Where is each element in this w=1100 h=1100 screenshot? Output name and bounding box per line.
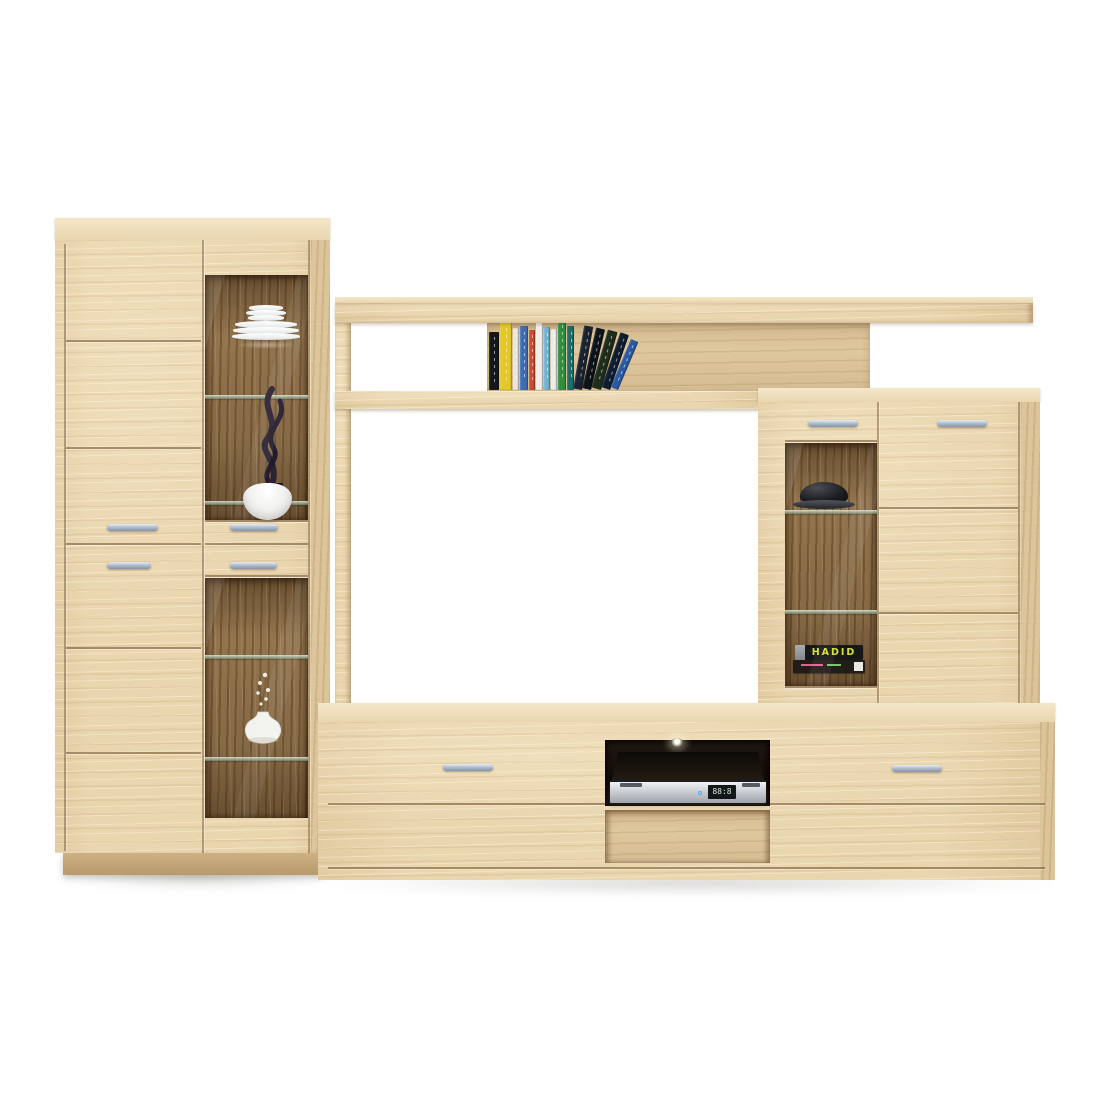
stacked-plates	[231, 305, 301, 395]
right-door-groove-2	[879, 612, 1018, 614]
book-spine	[544, 327, 550, 390]
tv-stand-groove-right	[770, 803, 1045, 805]
small-drawer-groove-2	[205, 543, 308, 545]
shelf-top-plank-front	[335, 303, 1033, 323]
shelf-top-plank	[335, 297, 1033, 323]
white-bowl	[243, 483, 292, 520]
player-power-led	[698, 791, 702, 795]
upper-door-groove-1	[66, 340, 201, 342]
upper-door-handle	[107, 524, 158, 531]
player-vent	[620, 783, 642, 787]
left-cabinet-frame-groove-left	[64, 244, 66, 851]
dvd-player-top	[612, 752, 764, 780]
tv-stand-top-face	[318, 703, 1055, 722]
small-drawer-groove-1	[205, 520, 308, 522]
player-display: 88:8	[708, 785, 736, 799]
left-display-cabinet	[55, 218, 330, 875]
hadid-book-title: HADID	[805, 645, 863, 660]
book-spine	[520, 326, 528, 390]
left-cabinet-top-face	[55, 218, 330, 240]
book-spine-2	[793, 660, 865, 673]
shelf-vertical-post	[335, 303, 351, 705]
book-spine	[558, 319, 566, 390]
lower-door-groove-2	[66, 752, 201, 754]
product-photo: HADID 88:8	[0, 0, 1100, 1100]
lower-display-window	[205, 578, 308, 818]
glass-shelf	[785, 610, 877, 614]
right-cabinet-door-handle	[937, 420, 987, 427]
left-cabinet-column-divider	[202, 240, 204, 853]
right-door-groove-1	[879, 507, 1018, 509]
left-cabinet-frame-groove-right	[308, 240, 310, 853]
glass-shelf	[205, 655, 308, 659]
right-cabinet-side-edge	[1020, 402, 1040, 715]
shelf-bottom-plank	[335, 391, 772, 409]
tv-drawer-handle-right	[892, 765, 942, 772]
book-spine	[489, 332, 499, 390]
book-spine	[551, 329, 557, 390]
tv-stand-groove-left	[328, 803, 605, 805]
dvd-player: 88:8	[610, 780, 766, 803]
lower-door-handle	[107, 562, 151, 569]
open-compartment	[605, 810, 770, 863]
tv-stand-bottom-groove	[328, 867, 1045, 869]
small-drawer-handle-1	[230, 524, 278, 531]
book-spine	[536, 320, 543, 390]
small-drawer-handle-2	[230, 562, 277, 569]
book-spine	[529, 330, 535, 390]
right-display-window: HADID	[785, 443, 877, 686]
right-drawer-groove	[785, 440, 877, 442]
niche-light	[671, 738, 683, 747]
tv-stand: 88:8	[318, 703, 1055, 880]
upper-door-groove-2	[66, 447, 201, 449]
hadid-book-endcap	[795, 645, 805, 660]
right-cabinet-top-face	[758, 388, 1040, 402]
right-display-cabinet: HADID	[758, 388, 1040, 715]
door-split-groove	[66, 543, 201, 545]
right-cabinet-drawer-handle	[808, 420, 858, 427]
tv-stand-side-edge	[1040, 722, 1055, 880]
hadid-book: HADID	[795, 645, 863, 660]
twig-vase	[238, 666, 288, 758]
right-cabinet-column-divider	[877, 402, 879, 715]
book-spine	[513, 328, 519, 390]
book-spine	[500, 322, 512, 390]
lower-door-groove-1	[66, 647, 201, 649]
shelf-books-upright	[489, 318, 574, 390]
right-cabinet-frame-groove	[1018, 402, 1020, 715]
upper-display-window	[205, 275, 308, 520]
left-cabinet-plinth	[63, 853, 322, 875]
shelf-books-leaning	[571, 318, 631, 391]
small-drawer-groove-3	[205, 575, 308, 577]
black-bowl	[793, 482, 855, 512]
tv-drawer-handle-left	[443, 764, 493, 771]
right-cabinet-bottom-groove	[785, 686, 877, 688]
shelf-books	[489, 318, 631, 391]
player-vent	[742, 783, 760, 787]
